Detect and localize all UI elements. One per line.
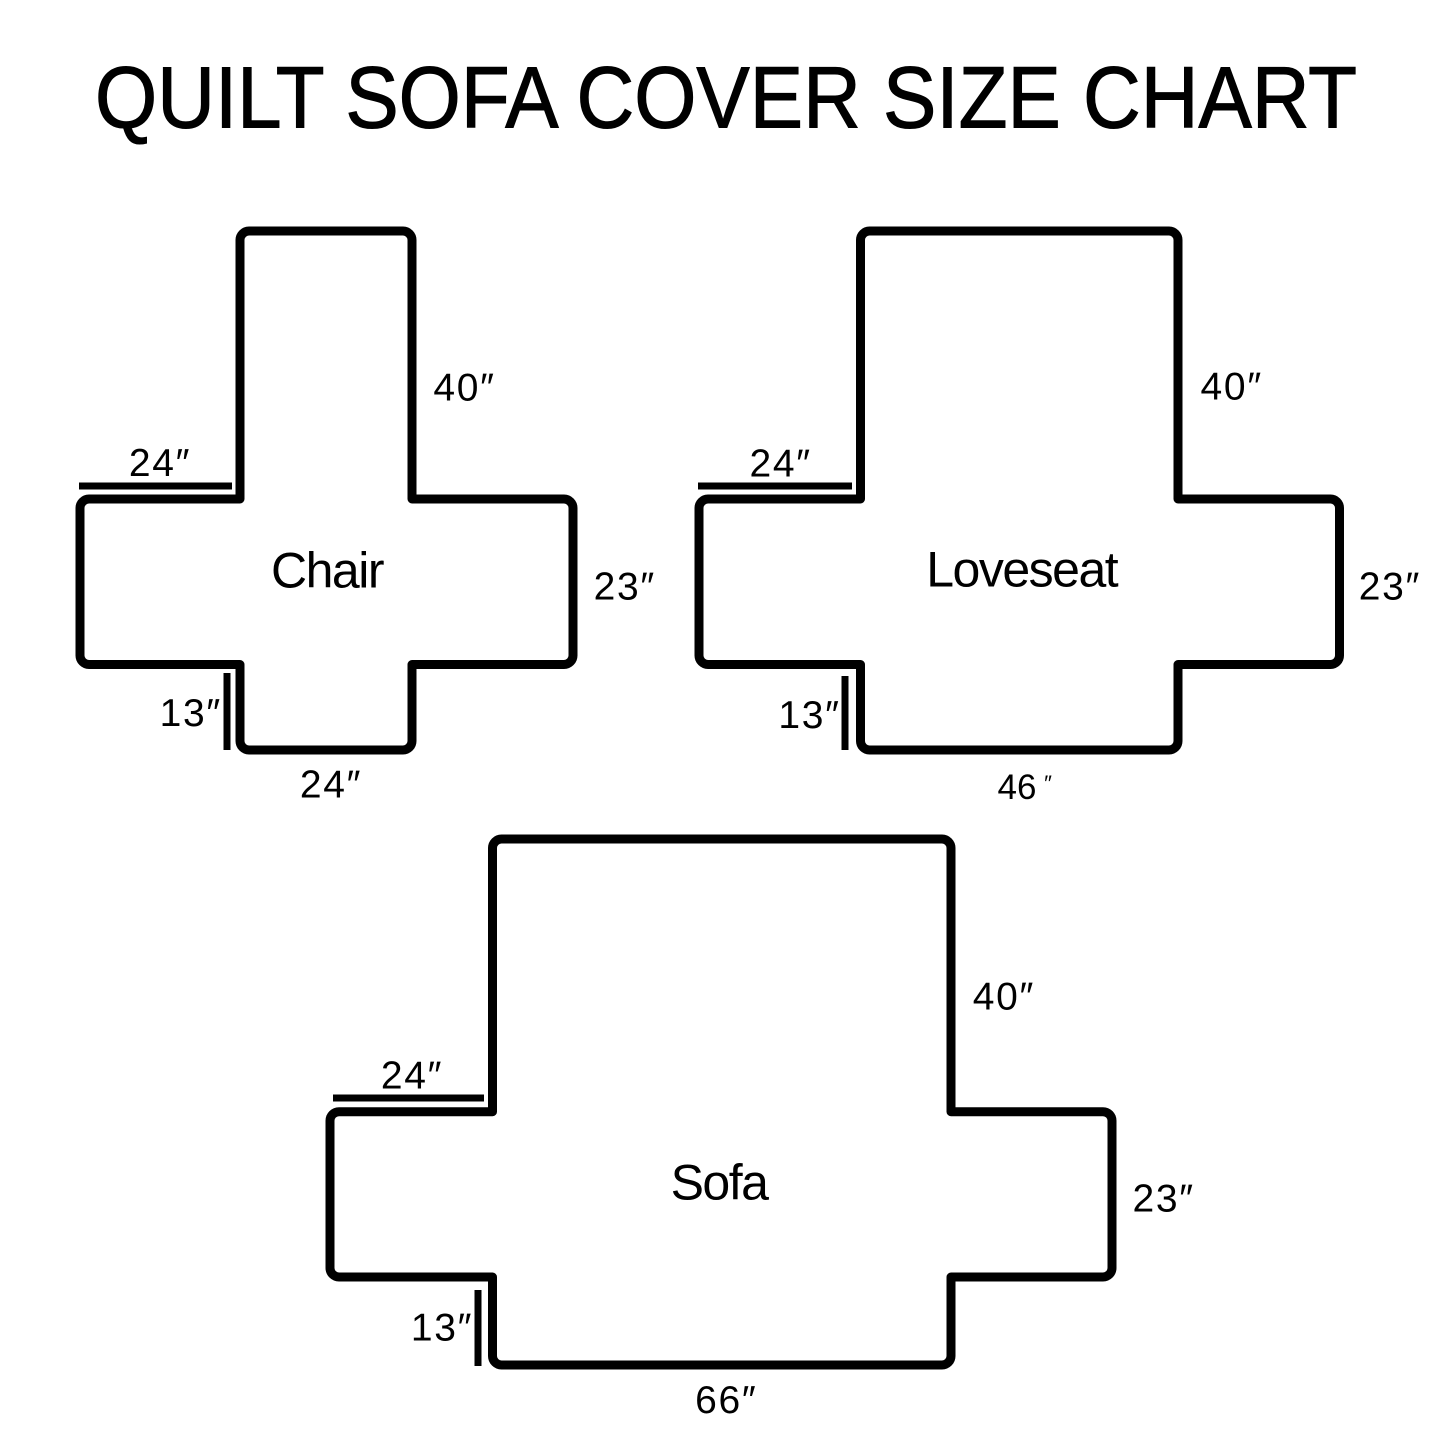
svg-text:13″: 13″ [778,694,840,737]
svg-text:24″: 24″ [300,764,362,807]
svg-text:23″: 23″ [594,566,656,609]
svg-text:13″: 13″ [411,1307,473,1350]
svg-text:40″: 40″ [973,976,1035,1019]
svg-text:66″: 66″ [695,1379,757,1422]
svg-text:13″: 13″ [160,692,222,735]
svg-text:24″: 24″ [749,443,811,486]
svg-text:23″: 23″ [1359,566,1421,609]
svg-text:24″: 24″ [129,442,191,485]
svg-text:23″: 23″ [1132,1178,1194,1221]
svg-text:Chair: Chair [271,543,384,599]
svg-text:40″: 40″ [433,367,495,410]
svg-text:24″: 24″ [381,1055,443,1098]
svg-text:QUILT SOFA COVER SIZE CHART: QUILT SOFA COVER SIZE CHART [95,50,1357,147]
svg-text:40″: 40″ [1201,366,1263,409]
svg-text:″: ″ [1044,771,1052,796]
svg-text:Sofa: Sofa [671,1155,770,1211]
svg-text:Loveseat: Loveseat [926,542,1119,598]
svg-text:46: 46 [998,768,1037,807]
